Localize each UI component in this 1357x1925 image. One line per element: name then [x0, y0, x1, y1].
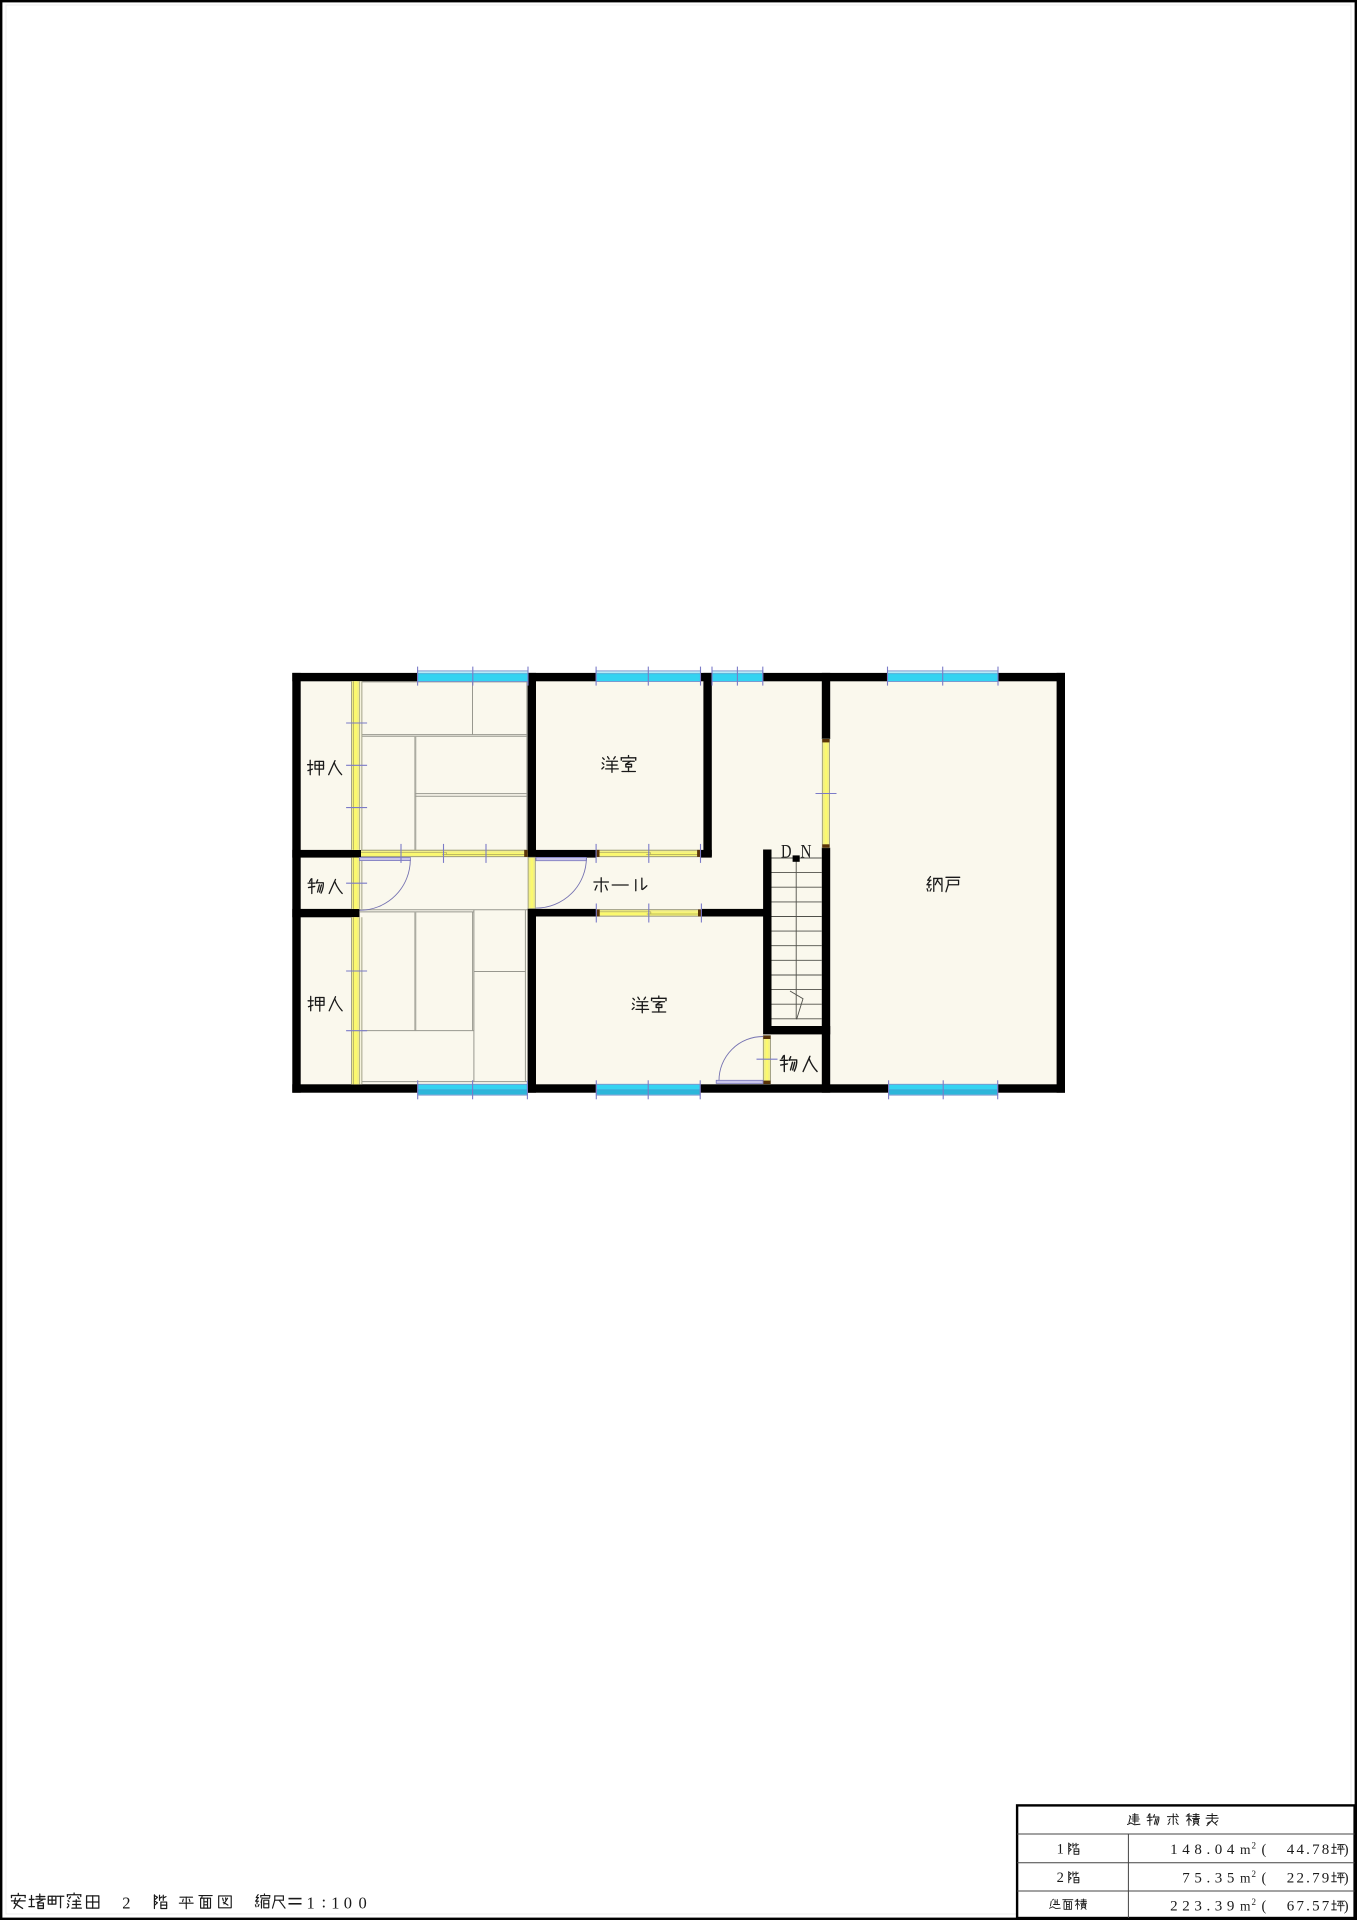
svg-text:0: 0: [344, 1893, 352, 1912]
svg-text:75.35: 75.35: [1182, 1870, 1239, 1886]
svg-text:1: 1: [1057, 1842, 1064, 1858]
svg-text:N: N: [801, 843, 812, 863]
svg-text:(: (: [1262, 1842, 1267, 1858]
svg-text:D: D: [781, 843, 792, 863]
svg-text:2: 2: [1057, 1870, 1064, 1886]
svg-text:(: (: [1262, 1898, 1267, 1914]
svg-text:148.04: 148.04: [1170, 1842, 1239, 1858]
svg-text:1: 1: [331, 1893, 339, 1912]
svg-text:m: m: [1240, 1870, 1251, 1885]
svg-text:67.57: 67.57: [1287, 1898, 1332, 1914]
svg-text:): ): [1344, 1870, 1349, 1886]
svg-text:1: 1: [307, 1893, 315, 1912]
svg-text::: :: [322, 1892, 327, 1911]
svg-text:m: m: [1240, 1898, 1251, 1913]
svg-text:(: (: [1262, 1870, 1267, 1886]
svg-text:2: 2: [1252, 1840, 1257, 1850]
svg-text:m: m: [1240, 1842, 1251, 1857]
svg-text:): ): [1344, 1842, 1349, 1858]
svg-text:44.78: 44.78: [1287, 1842, 1332, 1858]
svg-text:22.79: 22.79: [1287, 1870, 1332, 1886]
svg-text:2: 2: [1252, 1869, 1257, 1879]
svg-text:): ): [1344, 1898, 1349, 1914]
svg-text:0: 0: [359, 1893, 367, 1912]
svg-text:2: 2: [1252, 1897, 1257, 1907]
svg-text:2: 2: [122, 1893, 130, 1912]
svg-text:223.39: 223.39: [1170, 1898, 1239, 1914]
